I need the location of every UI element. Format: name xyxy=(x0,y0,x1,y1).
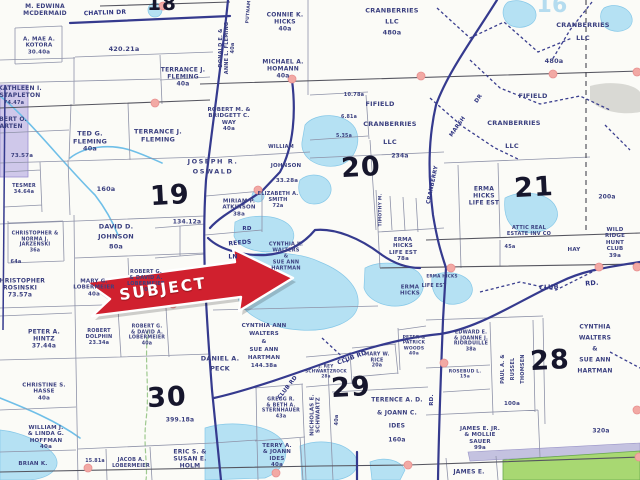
section-roads xyxy=(0,2,640,472)
section-dot xyxy=(635,453,640,461)
section-dot xyxy=(272,469,280,477)
plat-map: M. EDWINA MCDERMAIDCHATLIN DRA. MAE A. K… xyxy=(0,0,640,480)
section-dot xyxy=(151,99,159,107)
section-dot xyxy=(633,68,640,76)
section-dot xyxy=(404,461,412,469)
section-dot xyxy=(84,464,92,472)
parcel-lines xyxy=(0,0,590,480)
section-dot xyxy=(595,263,603,271)
map-base xyxy=(0,0,640,480)
section-dot xyxy=(254,186,262,194)
section-dot xyxy=(440,359,448,367)
trail-lines xyxy=(322,2,640,368)
section-dot xyxy=(447,264,455,272)
section-dot xyxy=(549,70,557,78)
water-layer xyxy=(0,1,640,480)
section-dot xyxy=(633,263,640,271)
marsh-ponds xyxy=(0,1,632,480)
section-dot xyxy=(159,2,167,10)
creek xyxy=(145,330,148,480)
section-dots xyxy=(84,2,640,477)
gray-patch xyxy=(590,83,640,113)
section-dot xyxy=(417,72,425,80)
section-dot xyxy=(633,406,640,414)
section-dot xyxy=(288,75,296,83)
